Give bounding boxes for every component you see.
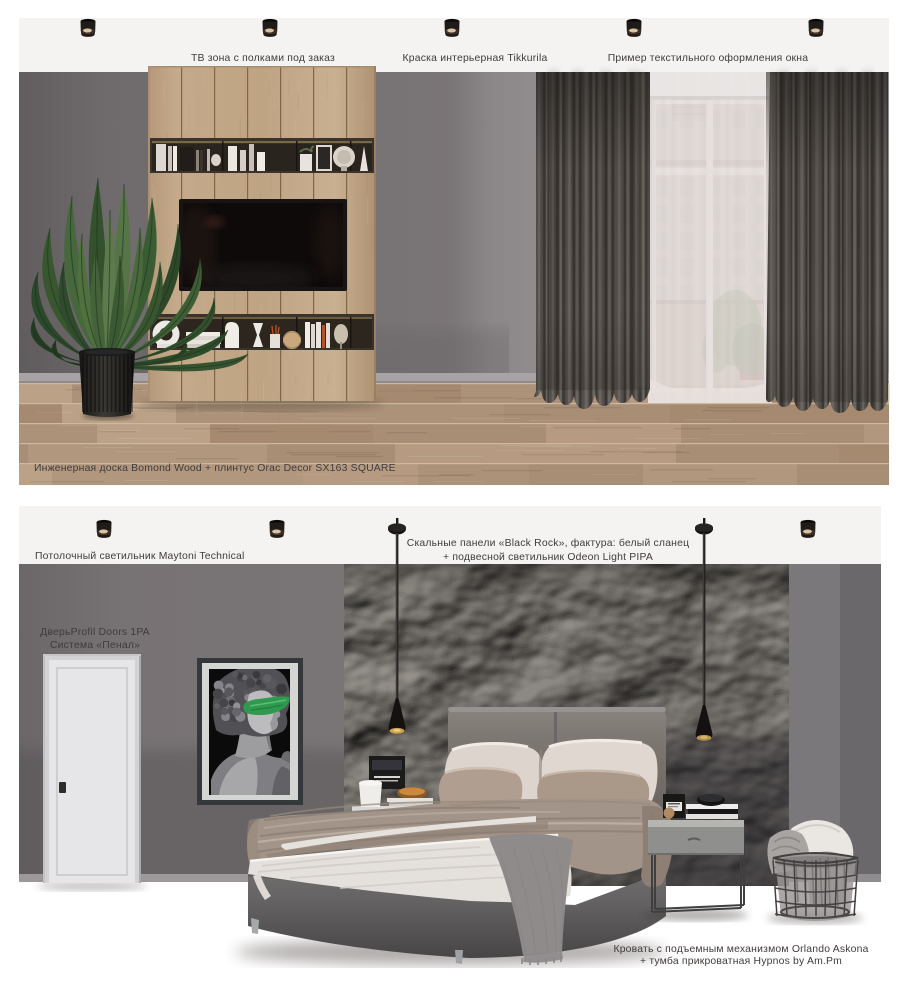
svg-text:ТВ зона с полками под заказ: ТВ зона с полками под заказ [191, 53, 335, 64]
svg-text:Система «Пенал»: Система «Пенал» [50, 640, 140, 651]
svg-text:Кровать с подъемным механизмом: Кровать с подъемным механизмом Orlando A… [613, 944, 868, 955]
svg-text:+ тумба прикроватная Hypnos by: + тумба прикроватная Hypnos by Am.Pm [640, 955, 842, 967]
svg-text:Инженерная доска Bomond Wood +: Инженерная доска Bomond Wood + плинтус O… [34, 463, 396, 474]
svg-text:+ подвесной светильник Odeon L: + подвесной светильник Odeon Light PIPA [443, 552, 653, 563]
svg-text:Пример текстильного оформления: Пример текстильного оформления окна [608, 52, 808, 64]
svg-text:Скальные панели «Black Rock»,: Скальные панели «Black Rock», фактура: б… [407, 537, 690, 549]
svg-text:ДверьProfil Doors 1PA: ДверьProfil Doors 1PA [40, 627, 150, 638]
svg-text:Краска интерьерная Tikkurila: Краска интерьерная Tikkurila [403, 53, 548, 64]
svg-text:Потолочный светильник Maytoni: Потолочный светильник Maytoni Technical [35, 551, 245, 562]
